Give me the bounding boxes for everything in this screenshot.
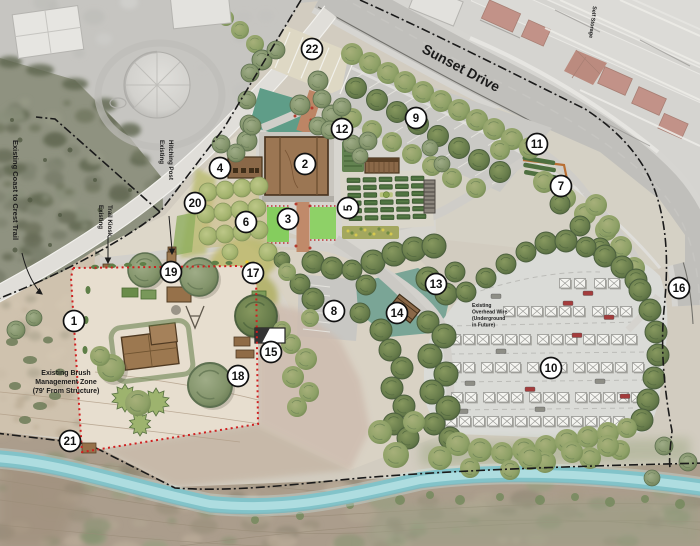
svg-text:Existing: Existing — [472, 303, 491, 309]
svg-text:13: 13 — [430, 279, 443, 291]
svg-text:Management Zone: Management Zone — [35, 379, 97, 386]
svg-text:2: 2 — [302, 159, 308, 171]
svg-text:10: 10 — [545, 363, 558, 375]
svg-text:6: 6 — [243, 217, 249, 229]
svg-text:(Underground: (Underground — [472, 316, 505, 322]
svg-text:Existing: Existing — [97, 205, 104, 229]
svg-text:12: 12 — [336, 124, 349, 136]
svg-text:20: 20 — [189, 198, 202, 210]
svg-text:7: 7 — [558, 181, 564, 193]
svg-text:14: 14 — [391, 308, 404, 320]
svg-text:11: 11 — [531, 139, 544, 151]
svg-text:Existing Coast to Crest Trail: Existing Coast to Crest Trail — [11, 140, 20, 240]
svg-text:18: 18 — [232, 371, 245, 383]
svg-text:17: 17 — [247, 268, 260, 280]
svg-text:Existing Brush: Existing Brush — [41, 370, 90, 377]
svg-text:16: 16 — [673, 283, 686, 295]
svg-text:in Future): in Future) — [472, 323, 495, 329]
svg-text:Existing: Existing — [158, 140, 165, 164]
svg-text:4: 4 — [217, 163, 224, 175]
svg-text:5: 5 — [343, 204, 355, 211]
svg-text:1: 1 — [71, 316, 78, 328]
svg-text:9: 9 — [413, 113, 419, 125]
svg-text:8: 8 — [331, 306, 338, 318]
svg-text:Overhead Wire: Overhead Wire — [472, 310, 507, 316]
svg-text:22: 22 — [306, 44, 319, 56]
svg-text:Hitching Post: Hitching Post — [167, 140, 174, 180]
svg-text:19: 19 — [165, 267, 178, 279]
svg-text:21: 21 — [64, 436, 77, 448]
svg-text:(79' From Structure): (79' From Structure) — [33, 388, 100, 395]
svg-text:Trail Kiosk: Trail Kiosk — [106, 205, 113, 237]
svg-text:3: 3 — [285, 214, 291, 226]
svg-text:15: 15 — [265, 347, 278, 359]
